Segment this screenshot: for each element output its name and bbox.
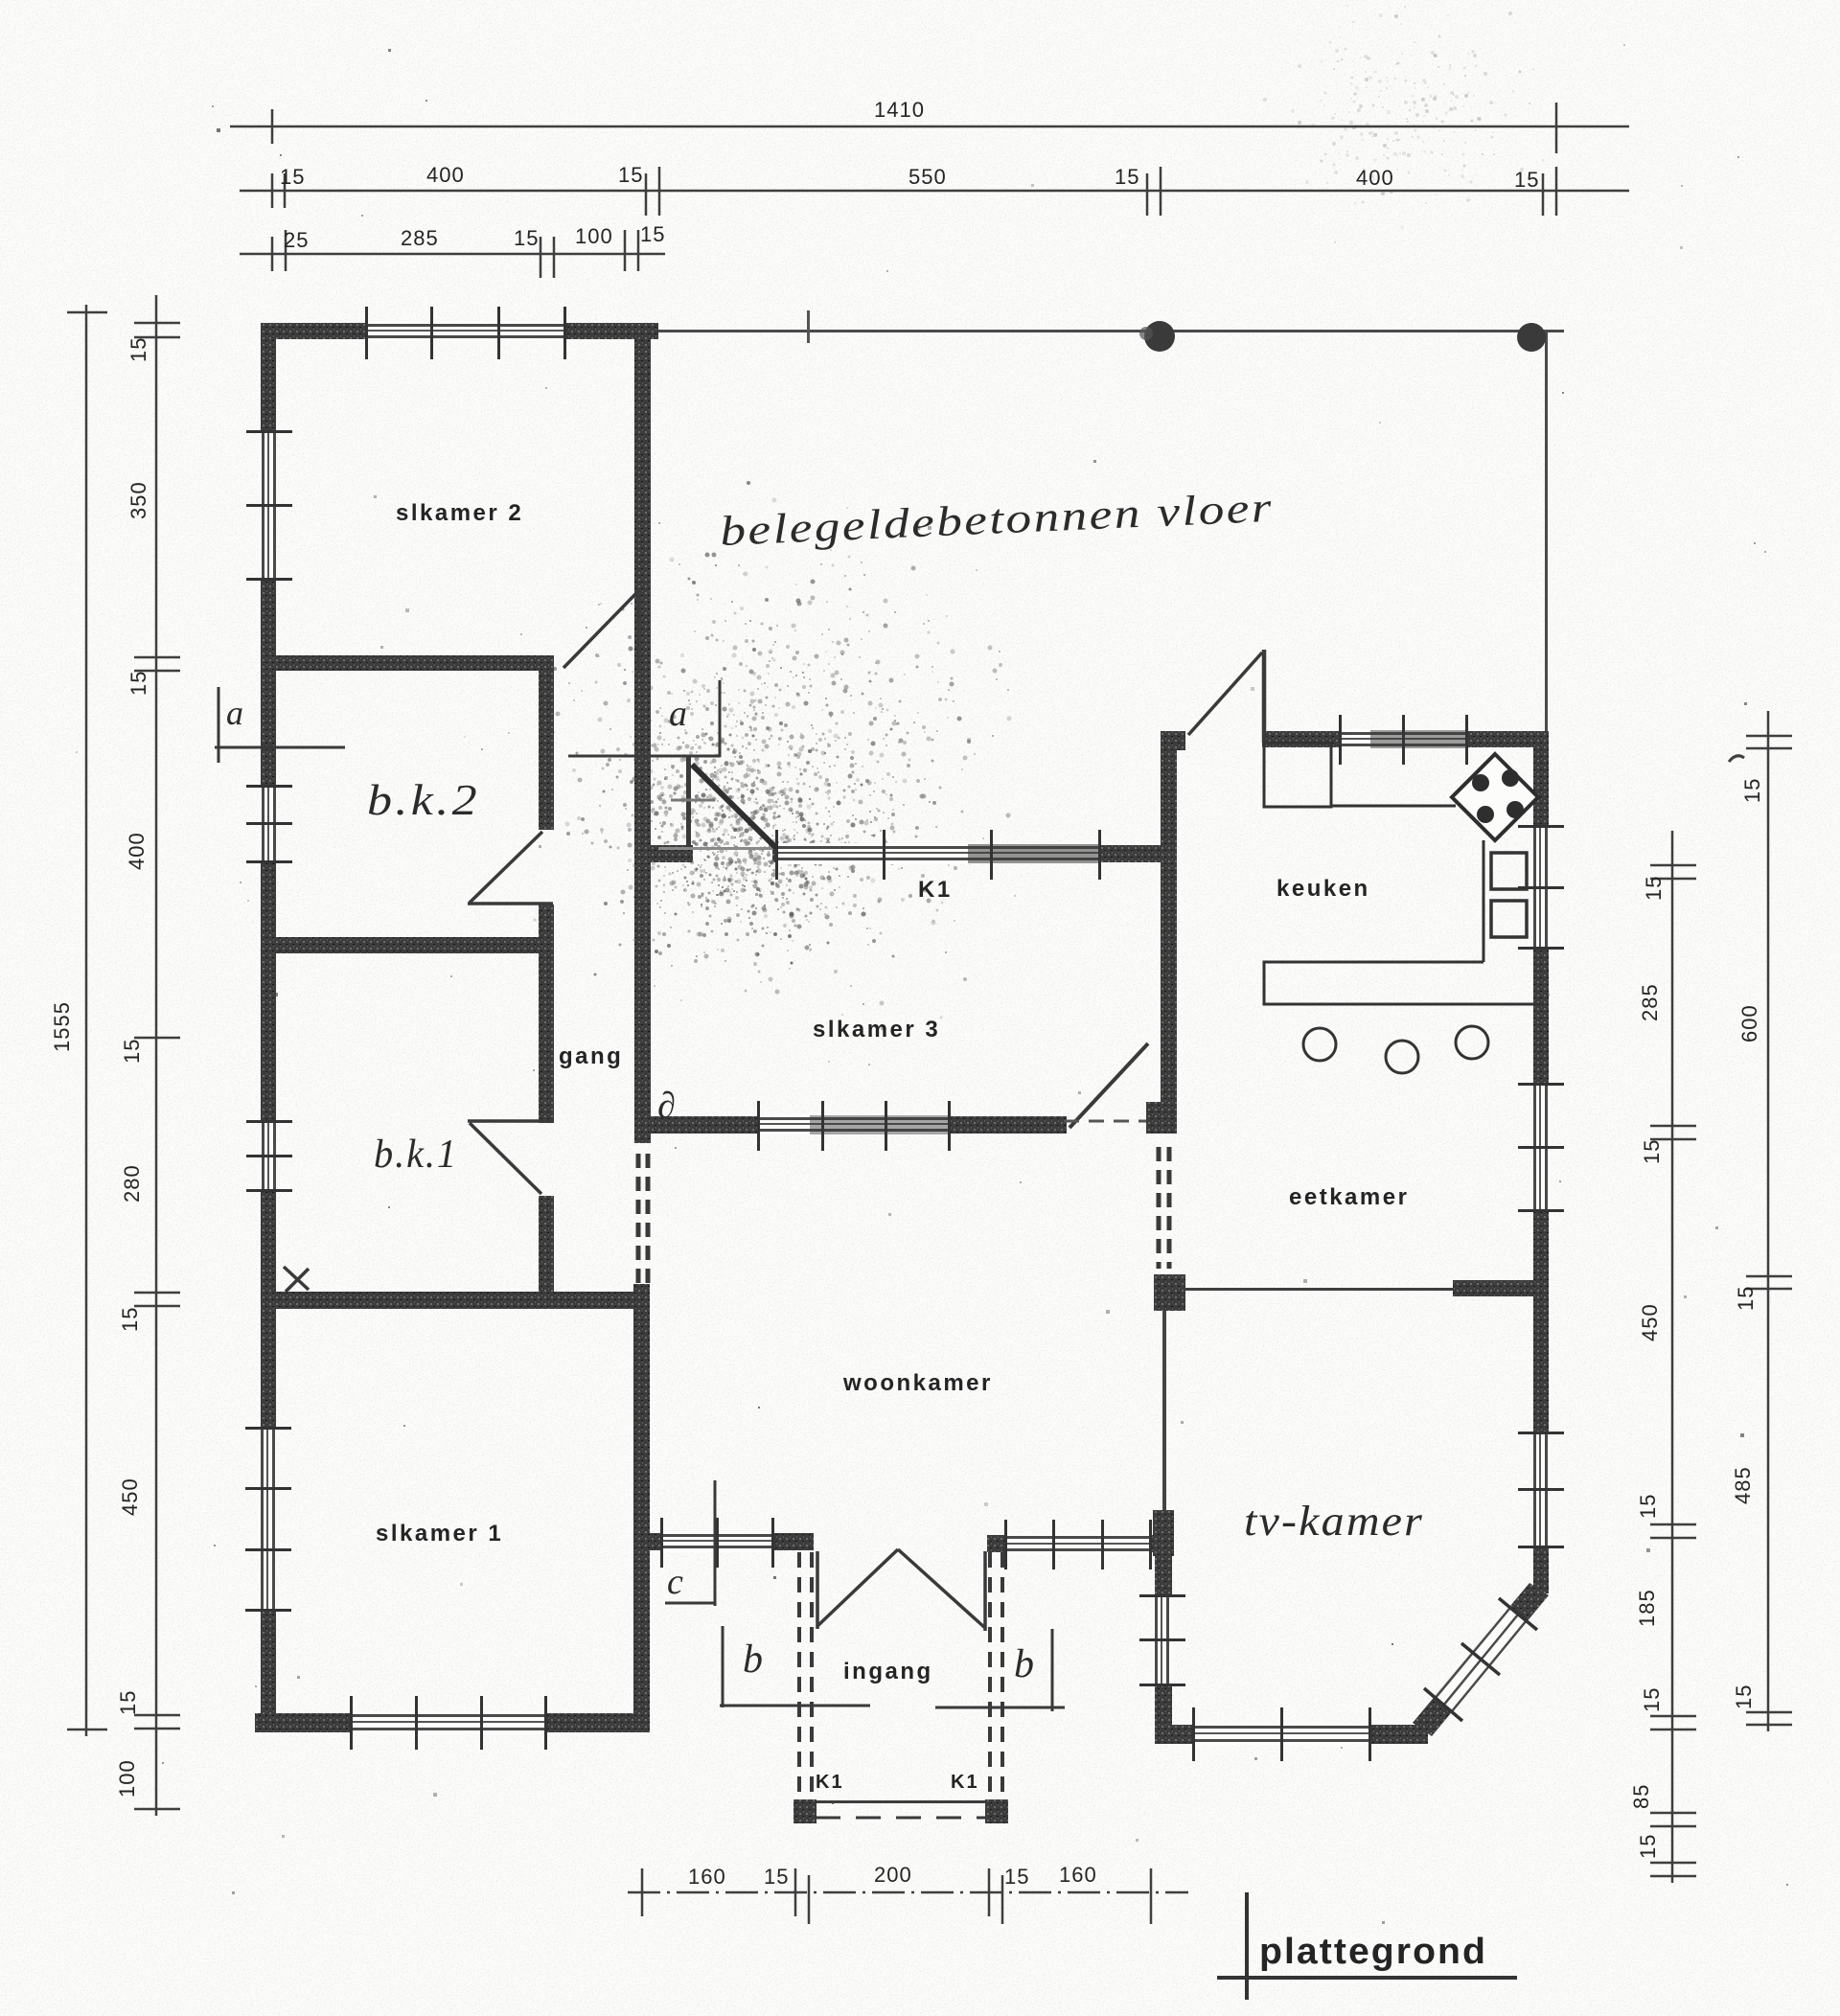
svg-text:gang: gang xyxy=(559,1043,623,1069)
svg-text:keuken: keuken xyxy=(1276,876,1370,902)
svg-text:c: c xyxy=(667,1562,683,1602)
svg-text:450: 450 xyxy=(1638,1303,1662,1341)
svg-text:185: 185 xyxy=(1635,1589,1659,1627)
svg-text:15: 15 xyxy=(1636,1494,1660,1519)
svg-text:15: 15 xyxy=(118,1307,142,1332)
svg-text:K1: K1 xyxy=(918,877,953,903)
svg-text:15: 15 xyxy=(1640,1139,1664,1164)
svg-text:15: 15 xyxy=(640,222,665,246)
svg-text:1410: 1410 xyxy=(874,98,925,122)
svg-text:1555: 1555 xyxy=(50,1001,74,1052)
svg-text:15: 15 xyxy=(280,165,305,189)
svg-text:plattegrond: plattegrond xyxy=(1259,1932,1487,1972)
svg-text:15: 15 xyxy=(126,671,150,696)
svg-text:tv-kamer: tv-kamer xyxy=(1244,1498,1424,1545)
svg-text:400: 400 xyxy=(1356,166,1394,190)
svg-text:15: 15 xyxy=(1004,1865,1029,1889)
svg-text:85: 85 xyxy=(1629,1784,1653,1809)
svg-text:∂: ∂ xyxy=(657,1086,676,1126)
svg-text:eetkamer: eetkamer xyxy=(1289,1184,1409,1210)
svg-text:15: 15 xyxy=(1734,1286,1758,1311)
svg-text:160: 160 xyxy=(688,1865,726,1889)
svg-text:15: 15 xyxy=(1640,1687,1664,1712)
svg-text:25: 25 xyxy=(284,228,309,252)
svg-text:15: 15 xyxy=(1514,168,1539,192)
svg-text:160: 160 xyxy=(1059,1863,1097,1887)
svg-text:b.k.1: b.k.1 xyxy=(374,1133,458,1177)
svg-text:485: 485 xyxy=(1731,1466,1755,1504)
svg-text:280: 280 xyxy=(120,1164,144,1203)
svg-text:15: 15 xyxy=(120,1039,144,1064)
svg-text:550: 550 xyxy=(908,165,947,189)
svg-text:slkamer 2: slkamer 2 xyxy=(396,500,523,526)
svg-text:15: 15 xyxy=(1636,1834,1660,1859)
svg-text:450: 450 xyxy=(118,1478,142,1516)
svg-text:b: b xyxy=(1014,1642,1034,1686)
svg-text:400: 400 xyxy=(125,832,149,870)
svg-text:a: a xyxy=(226,694,243,732)
svg-text:15: 15 xyxy=(764,1865,789,1889)
svg-text:200: 200 xyxy=(874,1863,912,1887)
svg-text:350: 350 xyxy=(126,481,150,519)
svg-text:ingang: ingang xyxy=(843,1659,933,1684)
svg-text:15: 15 xyxy=(116,1690,140,1715)
svg-text:285: 285 xyxy=(1638,983,1662,1021)
svg-text:15: 15 xyxy=(514,226,539,250)
svg-text:400: 400 xyxy=(426,163,465,187)
svg-text:slkamer 1: slkamer 1 xyxy=(376,1521,503,1546)
svg-text:15: 15 xyxy=(1732,1684,1756,1709)
svg-text:100: 100 xyxy=(575,224,613,248)
svg-text:600: 600 xyxy=(1737,1004,1761,1042)
svg-text:b.k.2: b.k.2 xyxy=(367,775,480,824)
svg-text:15: 15 xyxy=(126,337,150,362)
svg-text:100: 100 xyxy=(115,1759,139,1798)
svg-text:woonkamer: woonkamer xyxy=(842,1370,993,1396)
svg-text:slkamer 3: slkamer 3 xyxy=(813,1017,940,1042)
svg-text:b: b xyxy=(743,1638,763,1682)
svg-text:285: 285 xyxy=(401,226,439,250)
svg-text:15: 15 xyxy=(1740,778,1764,803)
svg-text:15: 15 xyxy=(1642,876,1666,901)
svg-text:a: a xyxy=(669,694,687,734)
svg-text:K1: K1 xyxy=(816,1772,844,1793)
svg-text:K1: K1 xyxy=(951,1772,979,1793)
svg-text:15: 15 xyxy=(618,163,643,187)
svg-text:15: 15 xyxy=(1115,165,1139,189)
